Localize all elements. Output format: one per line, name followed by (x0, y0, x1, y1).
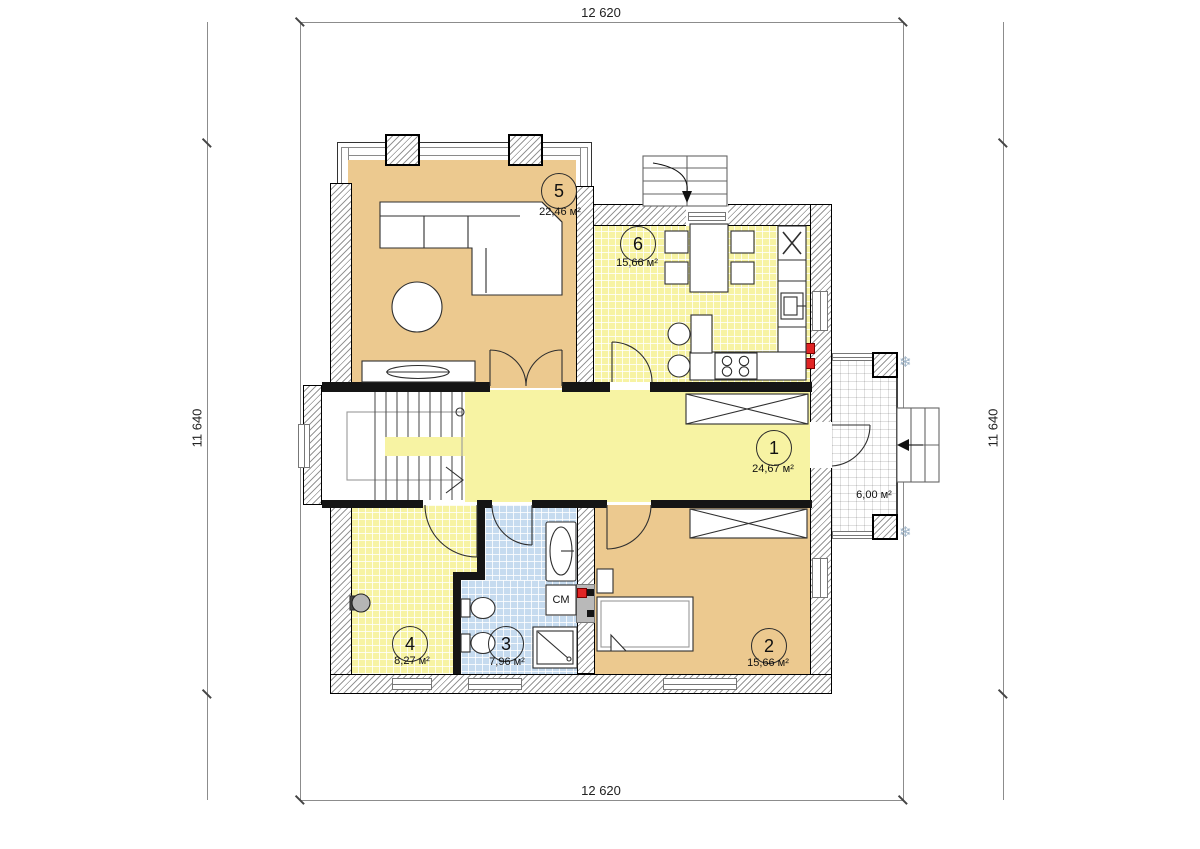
extension-line-left (300, 22, 301, 800)
porch-column-top (872, 352, 898, 378)
room-3-number: 3 (501, 634, 511, 655)
dimension-line-right (1003, 22, 1004, 800)
entrance-opening (810, 422, 832, 468)
dimension-label-bottom: 12 620 (581, 783, 621, 798)
window-room3 (468, 678, 522, 690)
room-5-area: 22,46 м² (539, 206, 581, 218)
wall-hall-top-1 (322, 382, 490, 392)
room-2-number: 2 (764, 636, 774, 657)
room-1-badge: 1 (756, 430, 792, 466)
room-2-area: 15,66 м² (747, 657, 789, 669)
window-stair (298, 424, 310, 468)
floor-plan-canvas: 12 620 12 620 11 640 11 640 (0, 0, 1200, 849)
porch-edge (896, 375, 898, 517)
back-door-threshold (688, 212, 726, 221)
dimension-label-right: 11 640 (986, 409, 1001, 448)
porch-area: 6,00 м² (856, 489, 892, 501)
bay-window-band-right (580, 147, 588, 188)
room-4-area: 8,27 м² (394, 655, 430, 667)
wall-left-bottom (330, 505, 352, 678)
bay-window-band-top (343, 147, 586, 156)
stair-landing-strip (385, 437, 465, 456)
room-3-floor-upper (485, 505, 577, 580)
outlet-marker-bath (577, 588, 587, 598)
bay-column-right (508, 134, 543, 166)
room-6-area: 15,66 м² (616, 257, 658, 269)
room-3-area: 7,96 м² (489, 656, 525, 668)
porch-rail-bottom (832, 531, 873, 539)
room-6-number: 6 (633, 234, 643, 255)
room-5-number: 5 (554, 181, 564, 202)
window-room2-bottom (663, 678, 737, 690)
dimension-label-left: 11 640 (190, 409, 205, 448)
extension-line-right (903, 22, 904, 800)
switch-marker-bath-1 (587, 589, 594, 596)
dimension-line-left (207, 22, 208, 800)
wall-4-3-c (453, 580, 461, 674)
exterior-stairs-back (643, 156, 727, 206)
bay-column-left (385, 134, 420, 166)
room-4-number: 4 (405, 634, 415, 655)
dimension-label-top: 12 620 (581, 5, 621, 20)
dimension-line-bottom (300, 800, 903, 801)
window-room2-side (812, 558, 828, 598)
wall-4-3-a (477, 505, 485, 572)
dimension-line-top (300, 22, 903, 23)
wall-4-3-b (453, 572, 485, 580)
wall-hall-top-2 (562, 382, 610, 392)
outlet-marker-kitchen-1 (804, 343, 815, 354)
wall-hall-bottom-3 (532, 500, 607, 508)
snowflake-icon: ❄ (899, 525, 912, 540)
wall-hall-bottom-1 (322, 500, 423, 508)
wall-hall-top-3 (650, 382, 812, 392)
wall-left-living (330, 183, 352, 390)
porch-rail-top (832, 353, 873, 361)
room-1-number: 1 (769, 438, 779, 459)
switch-marker-bath-2 (587, 610, 594, 617)
window-room4 (392, 678, 432, 690)
room-5-badge: 5 (541, 173, 577, 209)
washing-machine-label: СМ (546, 585, 576, 615)
wall-hall-bottom-4 (651, 500, 812, 508)
porch-floor (832, 357, 897, 537)
window-kitchen (812, 291, 828, 331)
outlet-marker-kitchen-2 (804, 358, 815, 369)
porch-column-bottom (872, 514, 898, 540)
snowflake-icon: ❄ (899, 355, 912, 370)
room-1-area: 24,67 м² (752, 463, 794, 475)
